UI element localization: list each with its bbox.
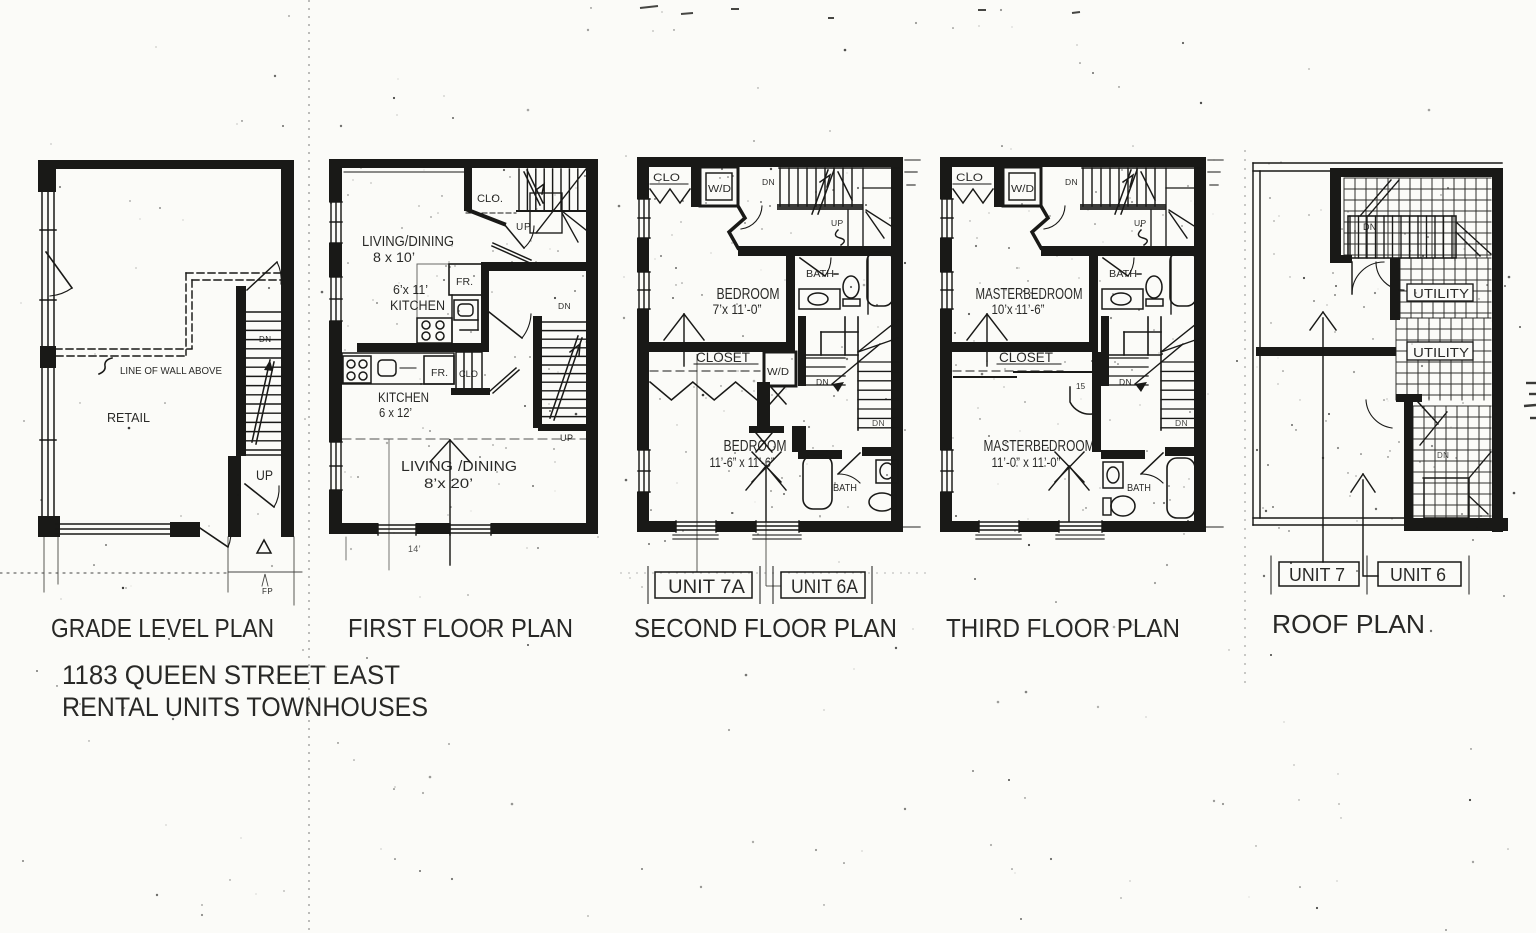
- svg-text:8 x 10’: 8 x 10’: [373, 250, 415, 265]
- svg-text:UNIT 6A: UNIT 6A: [791, 577, 858, 598]
- svg-text:DN: DN: [1119, 377, 1132, 387]
- svg-text:10’x 11’-6”: 10’x 11’-6”: [992, 301, 1045, 317]
- svg-text:UTILITY: UTILITY: [1413, 345, 1469, 360]
- svg-text:W/D: W/D: [1011, 183, 1034, 195]
- svg-text:UP: UP: [831, 218, 844, 228]
- svg-text:11’-0” x 11’-0”: 11’-0” x 11’-0”: [992, 454, 1061, 470]
- svg-text:15: 15: [1076, 382, 1086, 391]
- svg-text:BATH: BATH: [1109, 268, 1137, 280]
- svg-text:THIRD FLOOR PLAN: THIRD FLOOR PLAN: [946, 613, 1180, 643]
- svg-text:6’x 11’: 6’x 11’: [393, 282, 428, 297]
- svg-text:UTILITY: UTILITY: [1413, 286, 1469, 301]
- svg-text:DN: DN: [816, 377, 829, 387]
- svg-text:1183 QUEEN STREET EAST: 1183 QUEEN STREET EAST: [62, 660, 400, 690]
- svg-text:FIRST FLOOR PLAN: FIRST FLOOR PLAN: [348, 613, 573, 643]
- svg-text:UP: UP: [560, 433, 574, 443]
- svg-text:8’x 20’: 8’x 20’: [424, 476, 473, 491]
- svg-text:CLO: CLO: [956, 172, 984, 184]
- svg-text:/DINING: /DINING: [458, 459, 517, 475]
- svg-text:UP: UP: [516, 222, 532, 233]
- svg-text:UNIT 7: UNIT 7: [1289, 565, 1345, 585]
- svg-text:FP: FP: [262, 587, 273, 596]
- svg-text:MASTERBEDROOM: MASTERBEDROOM: [984, 438, 1095, 455]
- svg-text:RENTAL UNITS TOWNHOUSES: RENTAL UNITS TOWNHOUSES: [62, 692, 428, 722]
- svg-text:DN: DN: [1175, 418, 1188, 428]
- svg-text:CLOSET: CLOSET: [999, 349, 1053, 365]
- svg-text:SECOND FLOOR PLAN: SECOND FLOOR PLAN: [634, 613, 897, 643]
- svg-text:BATH: BATH: [806, 268, 834, 280]
- svg-text:KITCHEN: KITCHEN: [378, 390, 429, 405]
- svg-text:FR.: FR.: [431, 368, 448, 379]
- svg-text:LIVING/DINING: LIVING/DINING: [362, 234, 454, 250]
- svg-text:DN: DN: [558, 301, 571, 311]
- svg-text:BATH: BATH: [1127, 482, 1151, 494]
- svg-text:UP: UP: [256, 468, 273, 483]
- svg-text:CLO.: CLO.: [477, 193, 503, 205]
- svg-text:UNIT 7A: UNIT 7A: [668, 577, 745, 598]
- svg-text:DN: DN: [259, 335, 272, 344]
- svg-text:DN: DN: [1065, 177, 1078, 187]
- svg-text:CLO: CLO: [459, 369, 478, 380]
- svg-text:6 x 12’: 6 x 12’: [379, 405, 412, 420]
- svg-text:UNIT 6: UNIT 6: [1390, 565, 1446, 585]
- svg-text:LINE OF WALL ABOVE: LINE OF WALL ABOVE: [120, 365, 222, 377]
- svg-text:RETAIL: RETAIL: [107, 410, 150, 425]
- svg-text:ROOF PLAN: ROOF PLAN: [1272, 609, 1425, 639]
- svg-text:LIVING: LIVING: [401, 459, 453, 475]
- svg-text:GRADE LEVEL PLAN: GRADE LEVEL PLAN: [51, 613, 274, 643]
- svg-text:14’: 14’: [408, 544, 421, 554]
- svg-text:CLOSET: CLOSET: [696, 349, 750, 365]
- svg-text:W/D: W/D: [708, 183, 731, 195]
- svg-text:DN: DN: [1437, 451, 1449, 460]
- svg-text:DN: DN: [762, 177, 775, 187]
- svg-text:DN: DN: [872, 418, 885, 428]
- svg-text:FR.: FR.: [456, 277, 473, 288]
- svg-text:BEDROOM: BEDROOM: [724, 438, 787, 455]
- svg-text:W/D: W/D: [767, 367, 789, 378]
- svg-text:DN: DN: [1363, 222, 1377, 232]
- svg-text:CLO: CLO: [653, 172, 681, 184]
- svg-text:BATH: BATH: [833, 482, 857, 494]
